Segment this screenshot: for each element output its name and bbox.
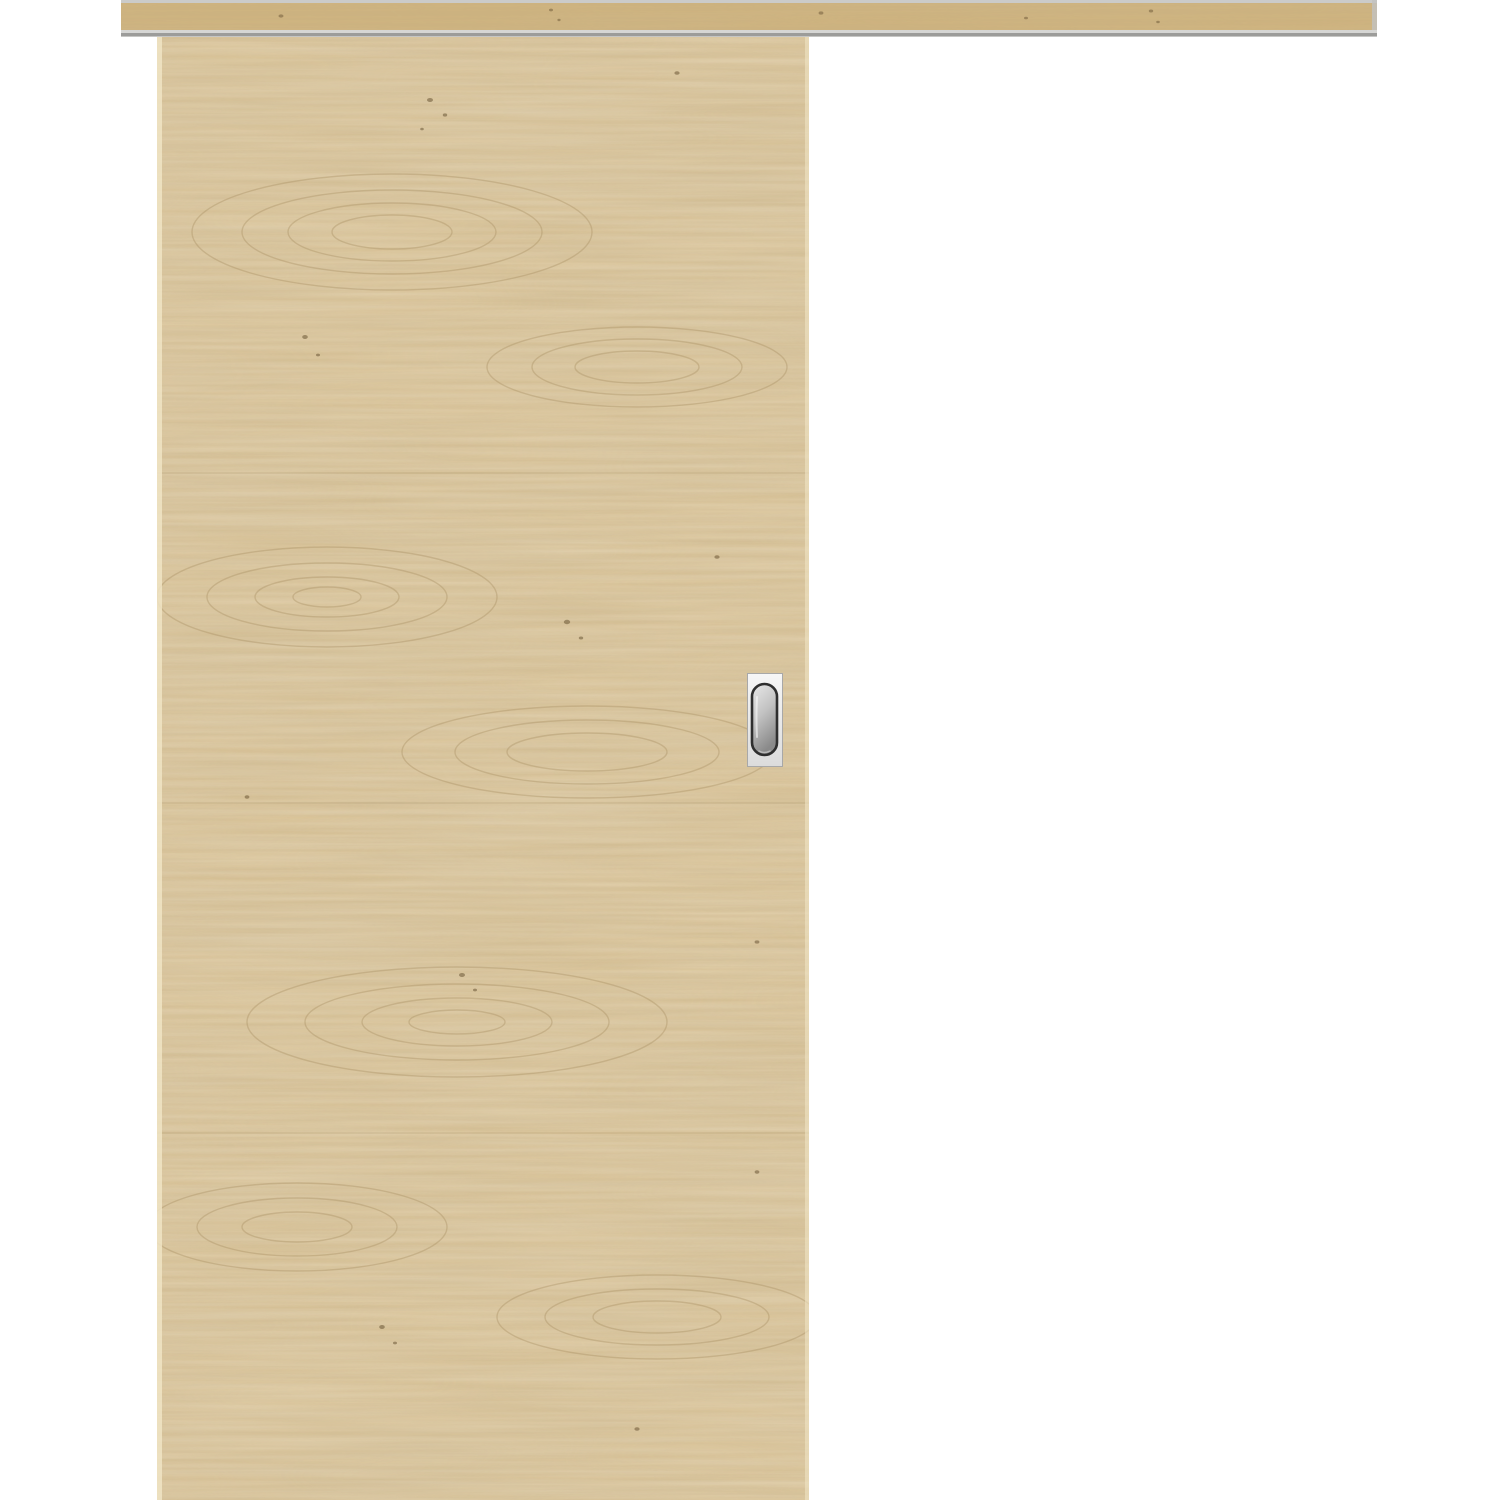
flush-pull-handle [747,673,783,767]
door-leaf [157,37,809,1500]
handle-recess-highlight [757,697,758,737]
product-photo [0,0,1500,1500]
track-wood-cover [121,3,1377,30]
track-end-cap [1372,0,1377,30]
handle-graphic [747,673,783,767]
track-pelmet-graphic [121,0,1377,37]
door-wood-graphic [157,37,809,1500]
wood-grain-texture [157,37,809,1500]
sliding-door-track [121,0,1377,37]
track-metal-strip [121,30,1377,37]
